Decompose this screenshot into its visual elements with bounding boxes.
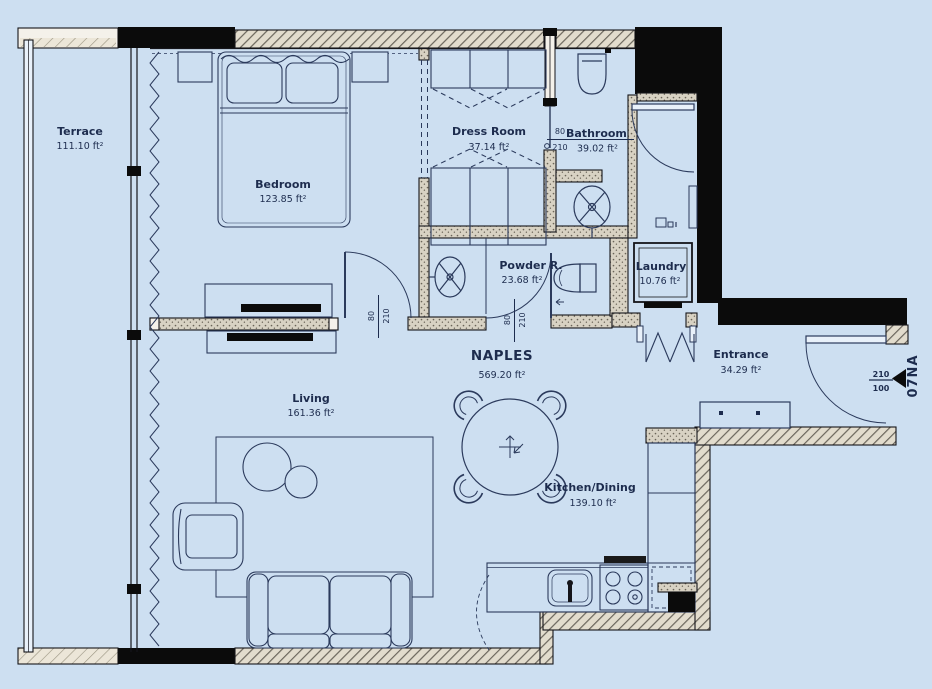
bathroom-toilet (578, 54, 606, 94)
label-bathroom-area: 39.02 ft² (577, 144, 618, 155)
wall-hall-powder-right (551, 315, 612, 328)
label-kitchen-area: 139.10 ft² (570, 498, 617, 509)
shoe-cabinet (700, 402, 790, 428)
wall-bedroom-dress (419, 178, 429, 318)
svg-text:80: 80 (367, 311, 376, 321)
label-kitchen-name: Kitchen/Dining (544, 481, 635, 494)
label-entrance-name: Entrance (713, 348, 768, 361)
label-powder-name: Powder R. (499, 259, 562, 272)
entrance-door-dim: 210 100 (869, 369, 906, 393)
sliding-door (127, 48, 141, 652)
coffee-table-large (243, 443, 291, 491)
label-living-name: Living (292, 392, 329, 405)
shower-pipe (689, 186, 697, 228)
wall-shower-top (637, 93, 697, 101)
label-entrance-area: 34.29 ft² (721, 365, 762, 376)
bedroom-door-dim: 80 210 (367, 295, 391, 338)
label-dress-name: Dress Room (452, 125, 526, 138)
label-laundry-area: 10.76 ft² (640, 276, 681, 287)
wall-hall-bedroom (150, 318, 338, 330)
wall-hall-powder-left (408, 317, 486, 330)
label-bathroom-name: Bathroom (566, 127, 627, 140)
powder-basin (429, 257, 465, 297)
laundry-bifold-door (637, 326, 696, 362)
living-furniture (173, 331, 412, 648)
table-center-mark (499, 436, 523, 458)
powder-door-dim: 80 210 (503, 299, 527, 342)
coffee-table-small (285, 466, 317, 498)
label-dress-area: 37.14 ft² (469, 142, 510, 153)
label-unit-code: 07NA (906, 354, 921, 397)
tv-console-living (207, 331, 336, 353)
wall-shaft-block (635, 27, 722, 94)
pillow-left (227, 63, 282, 103)
svg-text:80: 80 (503, 315, 512, 325)
pillow-right (286, 63, 338, 103)
sofa (247, 572, 412, 648)
label-laundry-name: Laundry (636, 260, 687, 273)
label-unit-name: NAPLES (471, 348, 533, 364)
wall-entrance-post (886, 325, 908, 344)
kitchen-sink (548, 570, 592, 606)
svg-text:210: 210 (382, 308, 391, 323)
wall-top-black (118, 27, 235, 48)
label-terrace-name: Terrace (57, 125, 103, 138)
wall-shaft-column (697, 93, 722, 303)
svg-text:210: 210 (518, 312, 527, 327)
bathroom-door-num: 80 (555, 127, 565, 136)
nightstand-left (178, 52, 212, 82)
dresser-bedroom (205, 284, 332, 317)
dress-closet-side (422, 60, 428, 178)
bathroom-door-den: 210 (552, 143, 567, 152)
label-unit-area: 569.20 ft² (479, 370, 526, 381)
wall-entrance-bottom (695, 427, 896, 445)
kitchen-stove (600, 556, 648, 610)
nightstand-right (352, 52, 388, 82)
label-terrace-area: 111.10 ft² (57, 141, 104, 152)
wall-kitchen-bottom (543, 612, 710, 630)
wall-laundry-left (610, 238, 628, 316)
label-bathroom: 80 Bathroom 210 39.02 ft² (547, 127, 634, 155)
wall-bottom (235, 648, 548, 664)
walls (18, 27, 908, 664)
label-bedroom-name: Bedroom (255, 178, 311, 191)
water-heater (656, 218, 666, 227)
wall-shaft-arm (718, 298, 907, 325)
svg-text:210: 210 (873, 370, 890, 379)
shower-door (632, 104, 694, 172)
door-direction-marker (892, 369, 906, 388)
wall-top (235, 30, 544, 48)
label-living-area: 161.36 ft² (288, 408, 335, 419)
wall-bottom-black (118, 648, 235, 664)
armchair (173, 503, 243, 570)
label-powder-area: 23.68 ft² (502, 275, 543, 286)
label-bedroom-area: 123.85 ft² (260, 194, 307, 205)
curtain-zigzag (150, 52, 159, 646)
wall-kitchen-right (695, 443, 710, 630)
floor-plan-page: Terrace 111.10 ft² Bedroom 123.85 ft² Dr… (0, 0, 932, 689)
floor-plan: Terrace 111.10 ft² Bedroom 123.85 ft² Dr… (0, 0, 932, 689)
svg-text:100: 100 (873, 384, 890, 393)
